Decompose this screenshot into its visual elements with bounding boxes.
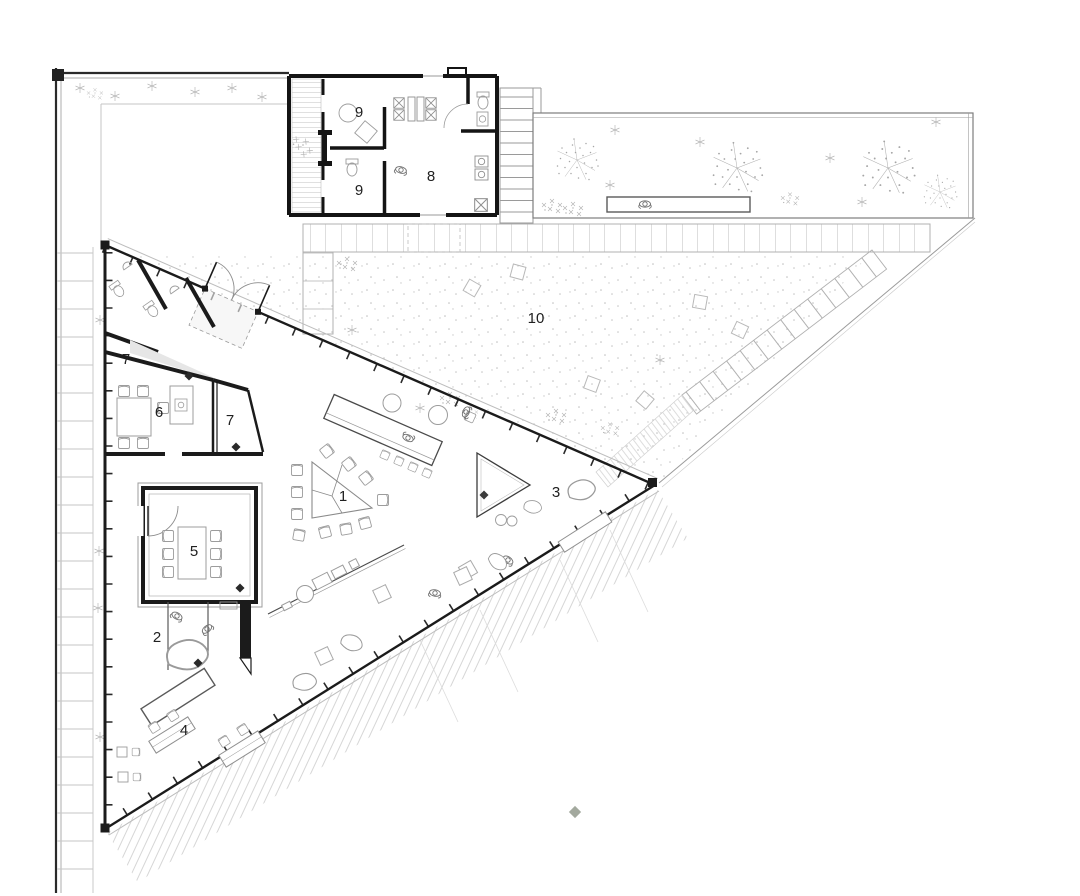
person-figure — [394, 165, 408, 176]
toilet-icon — [346, 159, 358, 176]
desk — [170, 386, 193, 424]
corner-block — [101, 241, 110, 250]
room-5 — [138, 483, 262, 607]
beanbag — [565, 476, 597, 504]
meeting-table — [117, 398, 151, 436]
left-paver-strip — [57, 247, 105, 893]
room-label-1: 1 — [339, 488, 347, 505]
wall — [240, 602, 251, 658]
top-planting-strip — [76, 81, 288, 104]
toilet-icon — [143, 300, 161, 319]
room-label-8: 8 — [427, 168, 435, 185]
beanbag — [340, 633, 364, 652]
corner-block — [101, 824, 110, 833]
outdoor-stairs — [500, 88, 533, 223]
room-label-4: 4 — [180, 722, 188, 739]
annex-bathroom — [444, 76, 497, 131]
door-swing — [444, 104, 468, 128]
room-label-9-lower: 9 — [355, 182, 363, 199]
small-table — [117, 747, 127, 757]
room-label-9-upper: 9 — [355, 104, 363, 121]
square-table — [355, 121, 378, 144]
person-figure — [428, 589, 442, 599]
roof-garden — [533, 113, 973, 218]
room-label-2: 2 — [153, 629, 161, 646]
shelf-partition — [268, 545, 406, 618]
annex-terrace — [292, 79, 321, 212]
room-label-7-right: 7 — [226, 412, 234, 429]
garden-bench — [607, 197, 750, 212]
beanbag — [291, 671, 318, 693]
toilet-icon — [109, 280, 127, 299]
corner-block — [52, 69, 64, 81]
room-label-5: 5 — [190, 543, 198, 560]
shaft-icon — [475, 199, 488, 212]
stage-triangle — [477, 453, 530, 517]
room-label-10: 10 — [528, 310, 545, 327]
room-label-3: 3 — [552, 484, 560, 501]
toilet-icon — [477, 92, 489, 109]
round-table — [297, 586, 314, 603]
room-label-6: 6 — [155, 404, 163, 421]
room-2 — [141, 602, 251, 726]
beanbag — [524, 501, 542, 514]
beanbag — [486, 551, 510, 573]
round-table — [429, 406, 448, 425]
annex-building — [289, 68, 497, 215]
kitchen-counter — [394, 97, 436, 121]
appliances — [475, 156, 488, 180]
corner-block — [648, 478, 657, 487]
column-marker — [231, 442, 240, 451]
round-table — [383, 394, 401, 412]
floor-plan-drawing: 9 9 8 10 7 6 7 5 1 2 3 4 — [0, 0, 1080, 896]
person-figure — [169, 610, 184, 623]
room-label-7-upper: 7 — [122, 351, 130, 368]
floor-plan-canvas: 9 9 8 10 7 6 7 5 1 2 3 4 — [0, 0, 1080, 896]
sink-icon — [477, 112, 488, 126]
site-marker-diamond — [569, 806, 581, 818]
sink-icon — [168, 284, 179, 294]
small-table — [118, 772, 128, 782]
